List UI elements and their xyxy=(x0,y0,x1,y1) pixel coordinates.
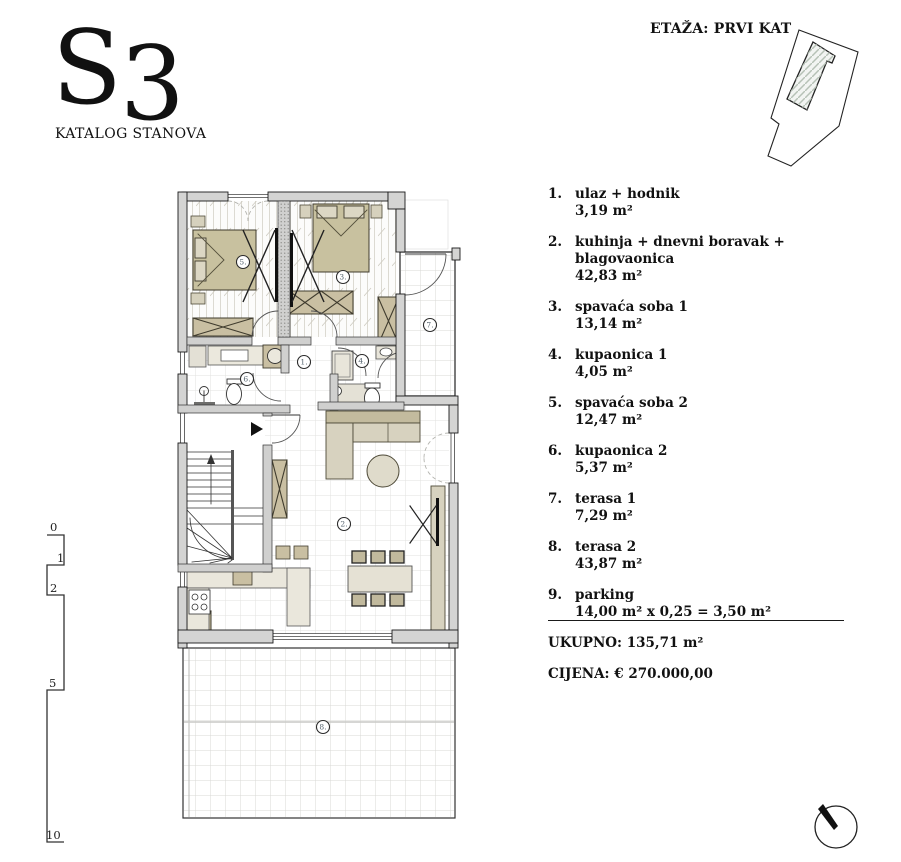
room-area: 43,87 m² xyxy=(575,556,875,573)
room-number: 8. xyxy=(548,539,575,556)
room-list-item: 7.terasa 17,29 m² xyxy=(548,491,880,525)
room-label-1: 1. xyxy=(298,356,311,369)
room-list-item: 4.kupaonica 14,05 m² xyxy=(548,347,880,381)
room-number: 9. xyxy=(548,587,575,604)
room-number: 3. xyxy=(548,299,575,316)
room-number: 5. xyxy=(548,395,575,412)
room-label-7: 7. xyxy=(424,319,437,332)
svg-text:2.: 2. xyxy=(340,520,347,529)
room-number: 1. xyxy=(548,186,575,203)
floor-label: ETAŽA: PRVI KAT xyxy=(650,21,791,37)
catalog-subtitle: KATALOG STANOVA xyxy=(55,126,206,142)
total-area: UKUPNO: 135,71 m² xyxy=(548,635,844,651)
room-list-item: 3.spavaća soba 113,14 m² xyxy=(548,299,880,333)
room-label-3: 3. xyxy=(337,271,350,284)
svg-text:0: 0 xyxy=(50,520,57,534)
room-name: terasa 2 xyxy=(575,539,875,556)
room-label-4: 4. xyxy=(356,355,369,368)
room-label-6: 6. xyxy=(241,373,254,386)
room-number: 6. xyxy=(548,443,575,460)
room-label-8: 8. xyxy=(317,721,330,734)
svg-text:1: 1 xyxy=(57,551,64,565)
room-name: spavaća soba 1 xyxy=(575,299,875,316)
room-list-item: 6.kupaonica 25,37 m² xyxy=(548,443,880,477)
unit-title: S3S3 xyxy=(52,18,183,120)
room-area: 3,19 m² xyxy=(575,203,875,220)
room-label-5: 5. xyxy=(237,256,250,269)
svg-text:6.: 6. xyxy=(243,375,250,384)
room-list-item: 1.ulaz + hodnik3,19 m² xyxy=(548,186,880,220)
room-list-item: 5.spavaća soba 212,47 m² xyxy=(548,395,880,429)
svg-text:5: 5 xyxy=(49,676,56,690)
svg-text:3.: 3. xyxy=(339,273,346,282)
room-name: terasa 1 xyxy=(575,491,875,508)
room-number: 2. xyxy=(548,234,575,251)
room-number: 7. xyxy=(548,491,575,508)
catalog-page: { "header": {"unit": "S3", "catalog": "K… xyxy=(0,0,901,862)
svg-text:7.: 7. xyxy=(426,321,433,330)
scale-bar: 0 1 2 5 10 xyxy=(46,520,64,842)
room-name: kupaonica 1 xyxy=(575,347,875,364)
room-area: 5,37 m² xyxy=(575,460,875,477)
svg-text:1.: 1. xyxy=(300,358,307,367)
svg-text:2: 2 xyxy=(50,581,57,595)
room-list-item: 9.parking14,00 m² x 0,25 = 3,50 m² xyxy=(548,587,880,621)
svg-text:5.: 5. xyxy=(239,258,246,267)
room-area: 4,05 m² xyxy=(575,364,875,381)
room-area: 7,29 m² xyxy=(575,508,875,525)
room-area: 14,00 m² x 0,25 = 3,50 m² xyxy=(575,604,875,621)
room-list-item: 2.kuhinja + dnevni boravak + blagovaonic… xyxy=(548,234,880,285)
room-area: 13,14 m² xyxy=(575,316,875,333)
room-area: 12,47 m² xyxy=(575,412,875,429)
round-rug xyxy=(367,455,399,487)
north-compass-icon xyxy=(815,804,857,848)
room-list: 1.ulaz + hodnik3,19 m² 2.kuhinja + dnevn… xyxy=(548,186,880,635)
dining-set xyxy=(348,551,412,606)
site-plan-icon xyxy=(768,30,858,166)
room-list-item: 8.terasa 243,87 m² xyxy=(548,539,880,573)
svg-text:8.: 8. xyxy=(319,723,326,732)
svg-text:4.: 4. xyxy=(358,357,365,366)
room-name: ulaz + hodnik xyxy=(575,186,875,203)
svg-text:10: 10 xyxy=(46,828,61,842)
price: CIJENA: € 270.000,00 xyxy=(548,666,844,682)
room-name: parking xyxy=(575,587,875,604)
room-area: 42,83 m² xyxy=(575,268,875,285)
totals-block: UKUPNO: 135,71 m² CIJENA: € 270.000,00 xyxy=(548,620,844,697)
stove xyxy=(189,590,210,614)
neighbor-terrace-grid xyxy=(398,200,448,249)
totals-divider xyxy=(548,620,844,621)
room-number: 4. xyxy=(548,347,575,364)
terrace-2 xyxy=(183,648,455,818)
room-name: kuhinja + dnevni boravak + blagovaonica xyxy=(575,234,875,268)
room-name: spavaća soba 2 xyxy=(575,395,875,412)
room-label-2: 2. xyxy=(338,518,351,531)
room-name: kupaonica 2 xyxy=(575,443,875,460)
